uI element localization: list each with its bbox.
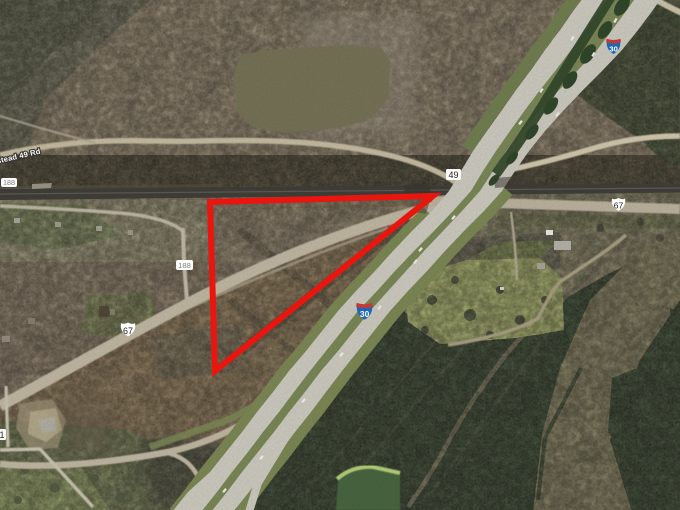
svg-text:67: 67 — [614, 201, 624, 211]
svg-text:49: 49 — [448, 170, 458, 180]
svg-text:188: 188 — [178, 261, 191, 270]
svg-text:67: 67 — [123, 326, 133, 336]
svg-text:188: 188 — [3, 178, 15, 187]
svg-text:1: 1 — [0, 430, 5, 440]
svg-text:30: 30 — [360, 309, 370, 319]
svg-text:30: 30 — [609, 45, 617, 54]
